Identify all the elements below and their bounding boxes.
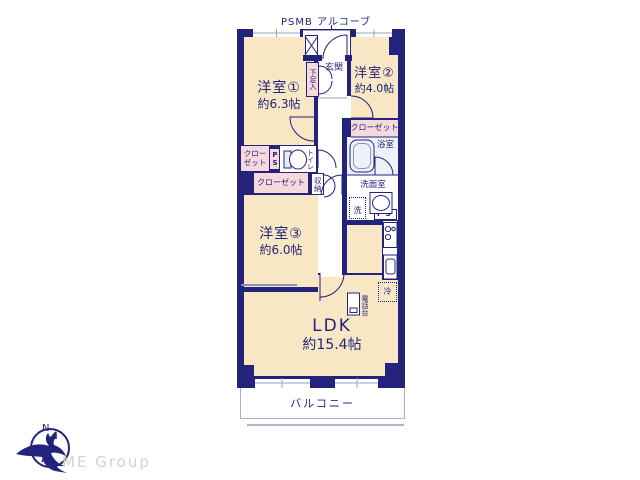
window-ldk-left [255,379,310,388]
bird-icon [16,433,67,473]
genkan-label: 玄関 [321,63,347,75]
wall-step-right [385,363,398,376]
storage: 収納 [311,173,324,195]
window-ldk-right [335,379,378,388]
toilet-label: トイレ [305,146,315,172]
logo-text: ME Group [62,453,151,471]
wall-notch-room2 [389,37,398,55]
meter-box [305,35,318,56]
wall-step-left [244,365,254,376]
alcove-psmb-label: PSMB アルコーブ [281,13,391,26]
washroom-label: 洗面室 [353,180,393,192]
compass-n: N [42,423,49,434]
ldk-name: LDK [312,316,352,337]
room1-labels: 洋室① 約6.3帖 [244,73,314,119]
doorway-ldk [320,271,342,277]
hallway [318,61,342,273]
room2-size: 約4.0帖 [355,82,395,96]
pipe-space-kitchen: PS [374,209,397,220]
floorplan-page: { "plan": { "top_label": "PSMB アルコーブ", "… [0,0,640,480]
balcony: バルコニー [240,388,405,419]
ps-kitchen-label: PS [377,210,394,218]
closet-room2-label: クローゼット [351,124,399,133]
room3-labels: 洋室③ 約6.0帖 [244,219,318,265]
ldk-labels: LDK 約15.4帖 [277,312,387,358]
window-room1 [253,29,300,37]
kitchen-counter [382,220,398,280]
fridge-label: 冷 [384,288,392,297]
room2-labels: 洋室② 約4.0帖 [351,59,398,103]
washer-space: 洗 [349,197,366,219]
closet-room1-line2: ゼット [244,159,267,167]
bathroom-label: 浴室 [375,140,396,151]
room3-size: 約6.0帖 [259,243,302,258]
pipe-space-left: PS [269,148,280,170]
room2-name: 洋室② [354,66,395,82]
washer-label: 洗 [354,207,362,216]
room1-size: 約6.3帖 [257,97,300,112]
me-group-logo: N ME Group [12,418,172,478]
fridge-space: 冷 [378,282,397,302]
closet-hall-label: クローゼット [257,179,305,188]
closet-hall: クローゼット [254,173,308,193]
floorplan: クローゼット 浴室 洗面室 洗 PS トイレ PS クロー ゼット クローゼット… [237,29,405,388]
ldk-size: 約15.4帖 [302,337,361,355]
room1-name: 洋室① [257,80,301,98]
balcony-label: バルコニー [290,395,355,411]
doorway-room2 [342,96,351,118]
closet-room1: クロー ゼット [241,146,269,171]
room3-name: 洋室③ [259,226,303,244]
balcony-outer-line [247,424,404,426]
window-room2 [356,29,392,37]
closet-room2: クローゼット [351,120,398,137]
